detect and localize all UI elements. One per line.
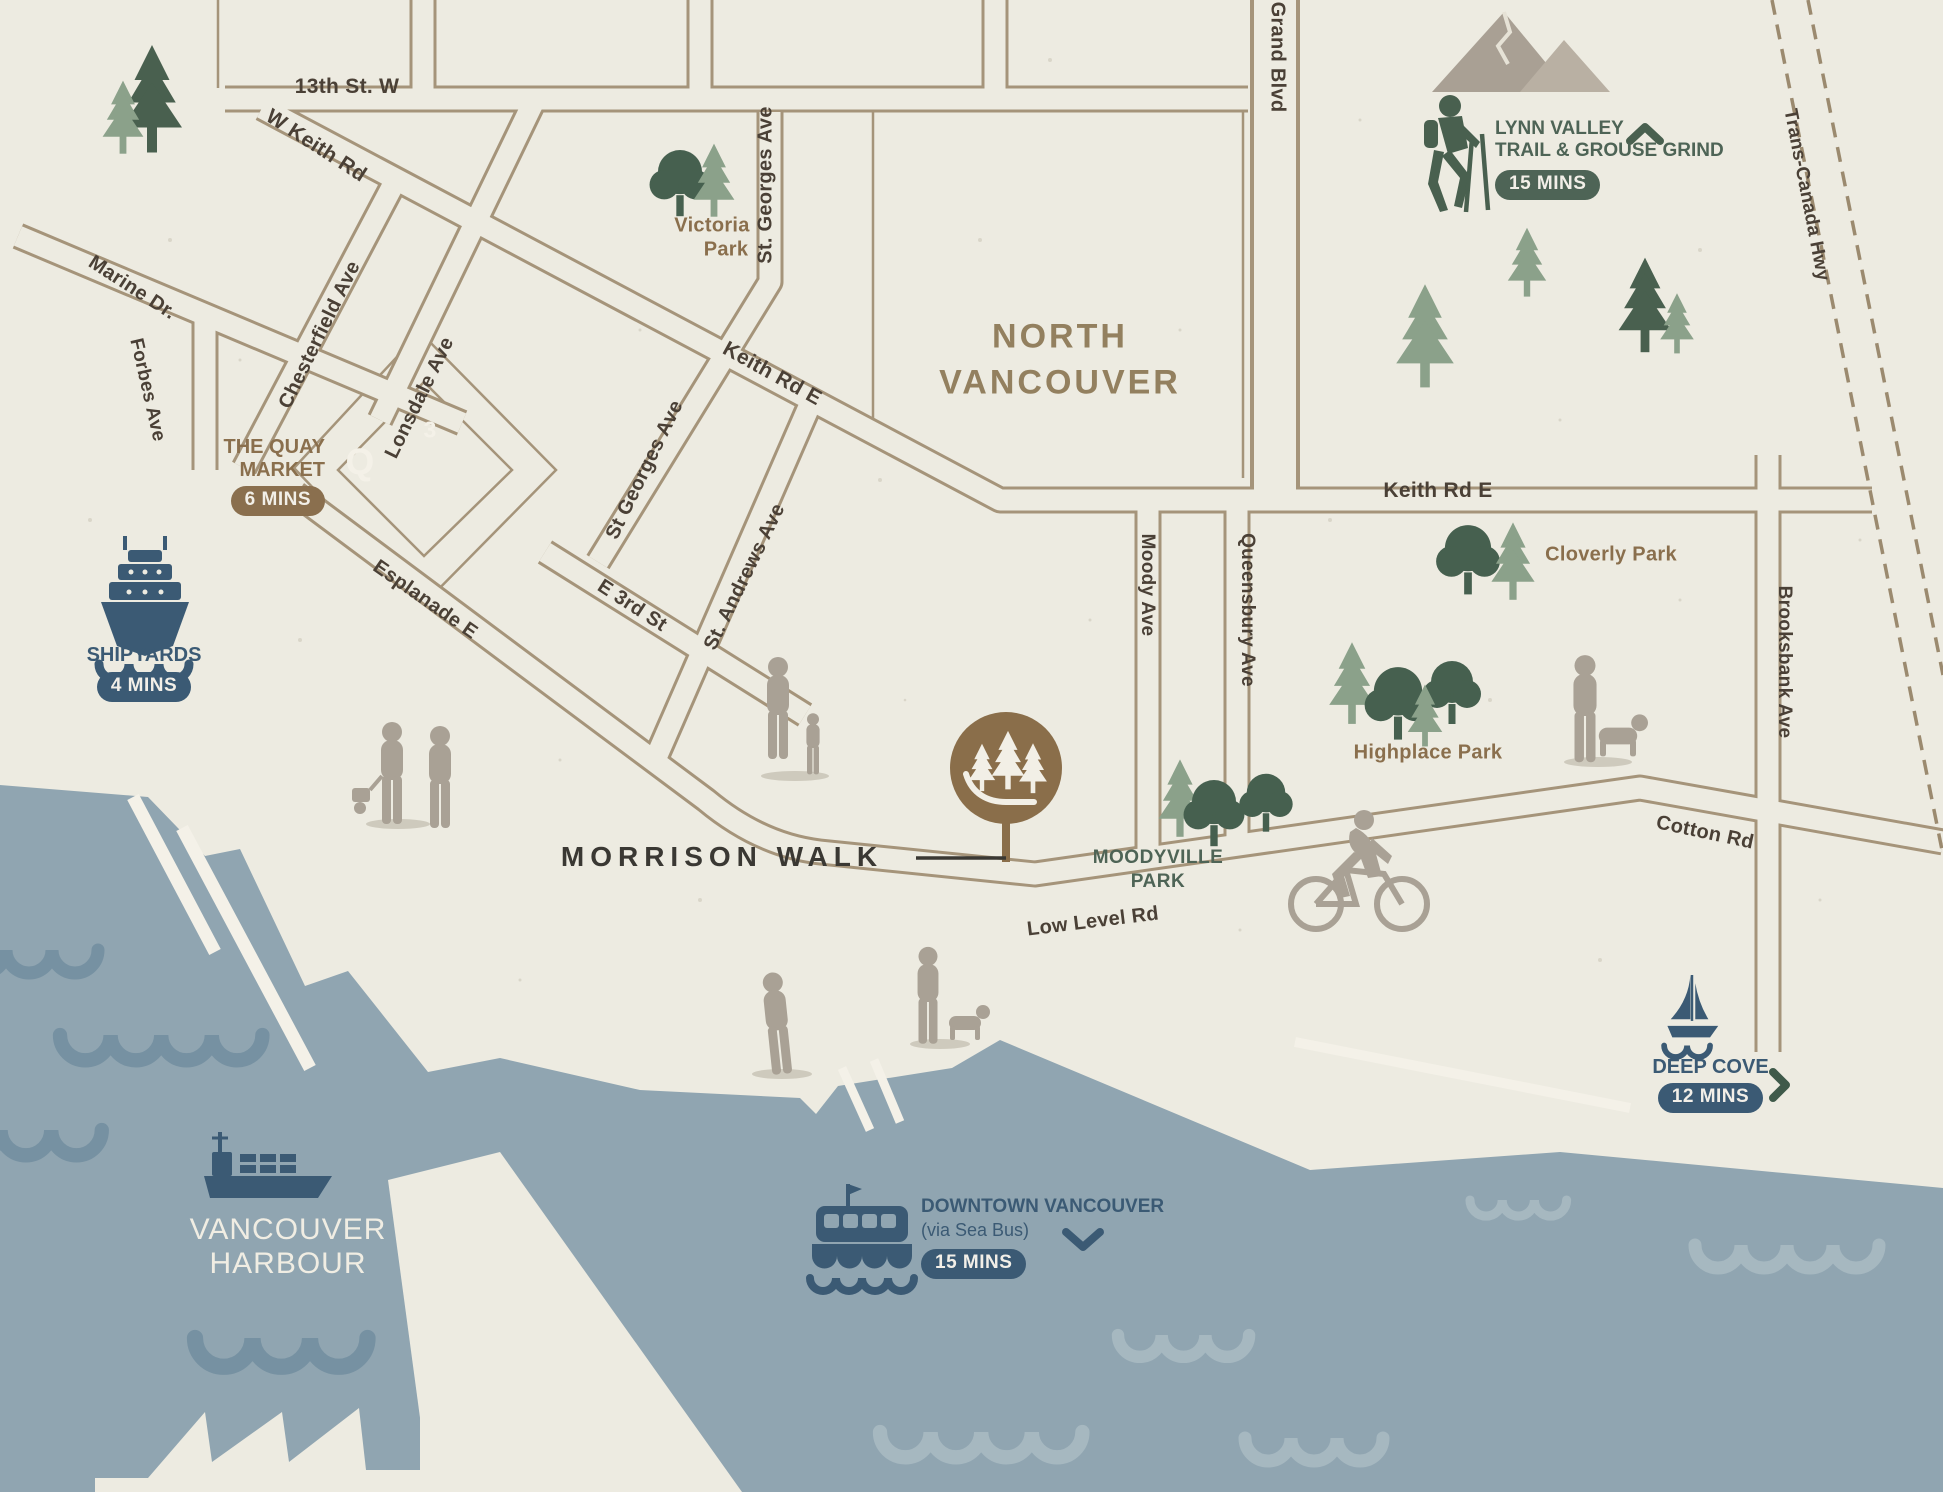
- poi-shipyards-name: SHIPYARDS: [64, 644, 224, 667]
- poi-quay-line2: MARKET: [170, 459, 325, 482]
- area-label-vancouver-harbour-1: VANCOUVER: [190, 1213, 387, 1247]
- poi-lynn-line2: TRAIL & GROUSE GRIND: [1495, 140, 1724, 162]
- round-tree-icon: [650, 150, 711, 216]
- street-label-keith-rd-e: Keith Rd E: [1383, 479, 1492, 503]
- poi-deep-cove-time-badge: 12 MINS: [1658, 1083, 1763, 1113]
- jogger-icon: [761, 971, 794, 1075]
- park-label-victoria-2: Park: [704, 239, 749, 262]
- child-icon: [806, 713, 819, 774]
- map-canvas: 13th St. W W Keith Rd Marine Dr. Forbes …: [0, 0, 1943, 1492]
- poi-quay-line1: THE QUAY: [170, 436, 325, 459]
- street-label-13th-st-w: 13th St. W: [295, 75, 400, 99]
- street-label-queensbury-ave: Queensbury Ave: [1236, 533, 1258, 687]
- poi-downtown-line1: DOWNTOWN VANCOUVER: [921, 1196, 1164, 1218]
- sailboat-icon: [1664, 975, 1718, 1057]
- street-label-brooksbank-ave: Brooksbank Ave: [1773, 586, 1795, 739]
- poi-quay-market: THE QUAY MARKET 6 MINS: [170, 436, 325, 516]
- park-label-highplace: Highplace Park: [1354, 742, 1503, 765]
- park-label-moodyville-2: PARK: [1131, 871, 1185, 893]
- harbour-water: [0, 785, 1943, 1492]
- poi-shipyards: SHIPYARDS 4 MINS: [64, 644, 224, 702]
- park-label-cloverly: Cloverly Park: [1545, 544, 1677, 567]
- pine-tree-icon: [694, 144, 735, 217]
- morrison-walk-marker: [916, 712, 1062, 862]
- poi-quay-time-badge: 6 MINS: [231, 486, 325, 516]
- stroller-icon: [352, 776, 382, 814]
- poi-downtown-time-badge: 15 MINS: [921, 1249, 1026, 1279]
- pine-tree-icon: [1491, 522, 1534, 599]
- area-label-north-vancouver-2: VANCOUVER: [939, 364, 1181, 403]
- poi-deep-cove: DEEP COVE 12 MINS: [1628, 1056, 1793, 1113]
- dog-walker-icon: [1573, 655, 1596, 762]
- poi-lynn-time-badge: 15 MINS: [1495, 170, 1600, 200]
- numeral-3-marker: 3: [423, 417, 436, 444]
- dog-icon: [949, 1005, 990, 1040]
- pine-tree-icon: [1396, 284, 1454, 387]
- pine-tree-icon: [1508, 228, 1546, 297]
- poi-downtown-line2: (via Sea Bus): [921, 1220, 1164, 1241]
- dog-icon: [1599, 714, 1648, 756]
- street-label-moody-ave: Moody Ave: [1136, 534, 1158, 637]
- poi-lynn-line1: LYNN VALLEY: [1495, 118, 1724, 140]
- poi-shipyards-time-badge: 4 MINS: [97, 672, 191, 702]
- pine-tree-icon: [1660, 293, 1694, 353]
- round-tree-icon: [1436, 525, 1500, 594]
- poi-deep-cove-name: DEEP COVE: [1628, 1056, 1793, 1079]
- area-label-vancouver-harbour-2: HARBOUR: [209, 1247, 366, 1281]
- pedestrian-icon: [918, 947, 939, 1044]
- street-label-grand-blvd: Grand Blvd: [1266, 2, 1289, 113]
- street-label-st-georges-ave-vert: St. Georges Ave: [755, 106, 778, 264]
- park-label-victoria-1: Victoria: [674, 215, 749, 238]
- park-label-moodyville-1: MOODYVILLE: [1093, 847, 1224, 869]
- poi-downtown-vancouver: DOWNTOWN VANCOUVER (via Sea Bus) 15 MINS: [921, 1196, 1164, 1279]
- mountains-icon: [1432, 12, 1610, 92]
- area-label-north-vancouver-1: NORTH: [992, 318, 1128, 357]
- poi-lynn-valley: LYNN VALLEY TRAIL & GROUSE GRIND 15 MINS: [1495, 118, 1724, 200]
- quay-q-marker: Q: [345, 441, 374, 483]
- hiker-icon: [1424, 95, 1488, 212]
- project-name-morrison-walk: MORRISON WALK: [561, 841, 883, 873]
- pedestrian-icon: [429, 726, 451, 828]
- pedestrian-icon: [381, 722, 403, 824]
- pedestrian-icon: [767, 657, 789, 759]
